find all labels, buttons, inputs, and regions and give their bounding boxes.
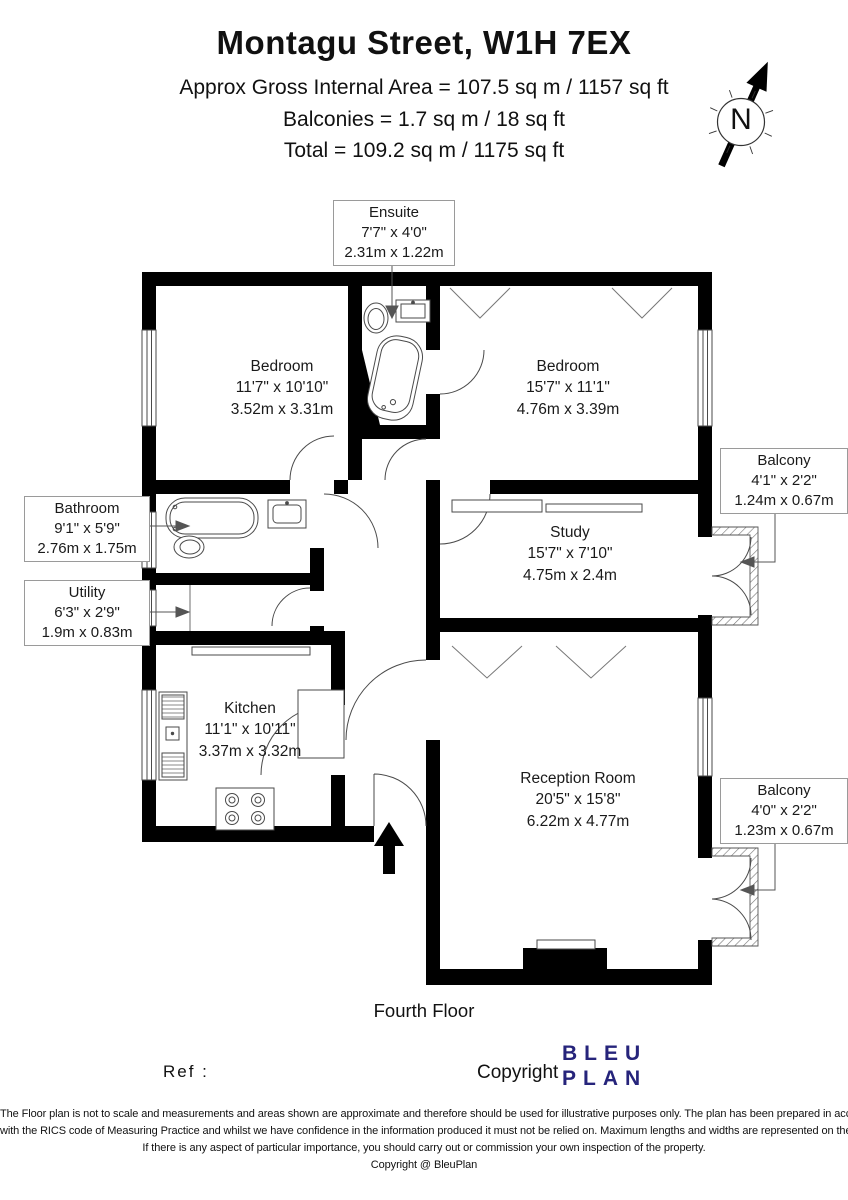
- bedroom1-name: Bedroom: [182, 356, 382, 377]
- study-unit-2: [546, 504, 642, 512]
- balcony1-imperial: 4'1" x 2'2": [721, 471, 847, 491]
- balcony1-doors: [712, 537, 751, 615]
- reception-imperial: 20'5" x 15'8": [456, 789, 700, 810]
- study-imperial: 15'7" x 7'10": [470, 543, 670, 564]
- north-label: N: [724, 103, 758, 137]
- bleuplan-logo: BLEU PLAN: [562, 1042, 647, 1092]
- bathroom-name: Bathroom: [25, 499, 149, 519]
- reception-door: [346, 660, 426, 740]
- ensuite-toilet-icon: [364, 303, 388, 333]
- bedroom2-door: [385, 439, 426, 480]
- bedroom1-label: Bedroom 11'7" x 10'10" 3.52m x 3.31m: [182, 356, 382, 420]
- kitchen-label: Kitchen 11'1" x 10'11" 3.37m x 3.32m: [150, 698, 350, 762]
- balcony2-name: Balcony: [721, 781, 847, 801]
- utility-imperial: 6'3" x 2'9": [25, 603, 149, 623]
- bathroom-bathtub-icon: [166, 498, 258, 538]
- reception-window: [698, 698, 712, 776]
- bedroom1-imperial: 11'7" x 10'10": [182, 377, 382, 398]
- utility-metric: 1.9m x 0.83m: [25, 623, 149, 643]
- ensuite-callout: Ensuite 7'7" x 4'0" 2.31m x 1.22m: [333, 200, 455, 266]
- balcony2-callout: Balcony 4'0" x 2'2" 1.23m x 0.67m: [720, 778, 848, 844]
- study-label: Study 15'7" x 7'10" 4.75m x 2.4m: [470, 522, 670, 586]
- balcony2-metric: 1.23m x 0.67m: [721, 821, 847, 841]
- chimney-shelf: [537, 940, 595, 949]
- ensuite-sink-icon: [396, 300, 430, 322]
- balcony1-callout: Balcony 4'1" x 2'2" 1.24m x 0.67m: [720, 448, 848, 514]
- bedroom2-window: [698, 330, 712, 426]
- logo-line1: BLEU: [562, 1042, 647, 1067]
- reception-metric: 6.22m x 4.77m: [456, 811, 700, 832]
- bedroom1-door: [290, 436, 334, 480]
- balcony2-imperial: 4'0" x 2'2": [721, 801, 847, 821]
- bedroom2-imperial: 15'7" x 11'1": [468, 377, 668, 398]
- bathroom-sink-icon: [268, 500, 306, 528]
- study-metric: 4.75m x 2.4m: [470, 565, 670, 586]
- entrance-arrow-icon: [374, 822, 404, 874]
- balcony1-name: Balcony: [721, 451, 847, 471]
- reception-name: Reception Room: [456, 768, 700, 789]
- bathroom-metric: 2.76m x 1.75m: [25, 539, 149, 559]
- study-unit-1: [452, 500, 542, 512]
- bedroom1-window: [142, 330, 156, 426]
- kitchen-name: Kitchen: [150, 698, 350, 719]
- bedroom2-name: Bedroom: [468, 356, 668, 377]
- bathroom-imperial: 9'1" x 5'9": [25, 519, 149, 539]
- bedroom2-metric: 4.76m x 3.39m: [468, 399, 668, 420]
- kitchen-counter: [192, 647, 310, 655]
- bathroom-door: [324, 494, 378, 548]
- utility-name: Utility: [25, 583, 149, 603]
- bathroom-toilet-icon: [174, 536, 204, 558]
- bedroom2-label: Bedroom 15'7" x 11'1" 4.76m x 3.39m: [468, 356, 668, 420]
- balcony1-metric: 1.24m x 0.67m: [721, 491, 847, 511]
- kitchen-imperial: 11'1" x 10'11": [150, 719, 350, 740]
- front-door: [374, 774, 426, 826]
- utility-callout: Utility 6'3" x 2'9" 1.9m x 0.83m: [24, 580, 150, 646]
- logo-line2: PLAN: [562, 1067, 647, 1092]
- stove-icon: [216, 788, 274, 830]
- bathroom-callout: Bathroom 9'1" x 5'9" 2.76m x 1.75m: [24, 496, 150, 562]
- bedroom1-metric: 3.52m x 3.31m: [182, 399, 382, 420]
- kitchen-metric: 3.37m x 3.32m: [150, 741, 350, 762]
- utility-door: [272, 588, 310, 626]
- ensuite-name: Ensuite: [334, 203, 454, 223]
- ensuite-imperial: 7'7" x 4'0": [334, 223, 454, 243]
- balconies: [712, 527, 758, 946]
- reception-label: Reception Room 20'5" x 15'8" 6.22m x 4.7…: [456, 768, 700, 832]
- study-name: Study: [470, 522, 670, 543]
- ensuite-metric: 2.31m x 1.22m: [334, 243, 454, 263]
- balcony2-doors: [712, 858, 751, 940]
